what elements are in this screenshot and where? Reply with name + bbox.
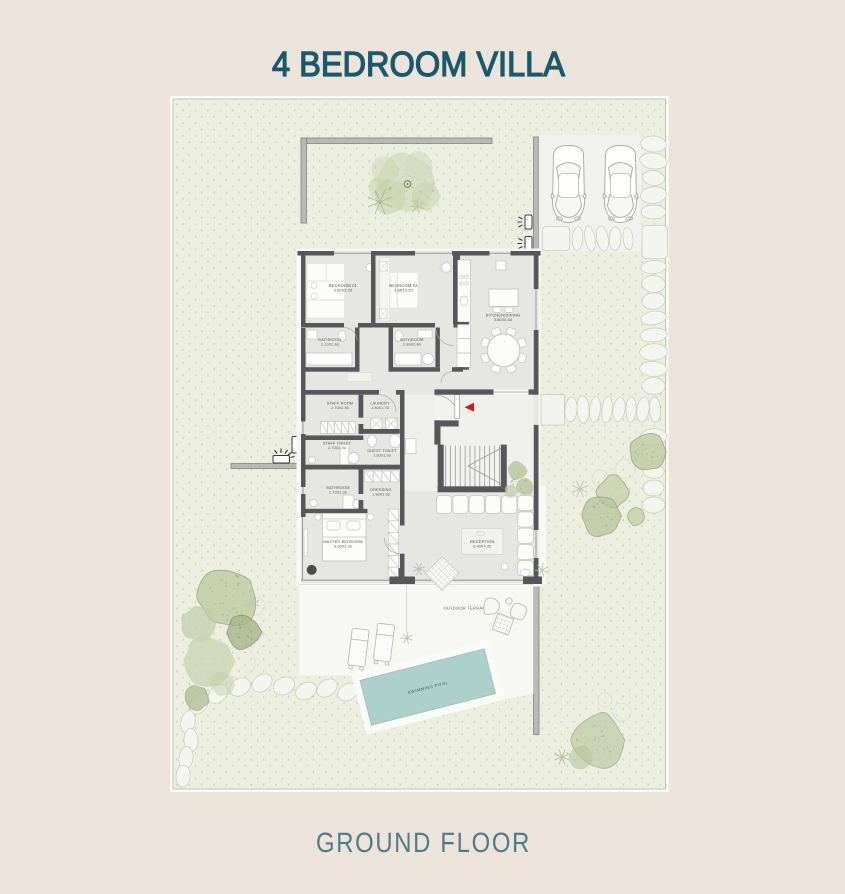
svg-text:1.80X1.70: 1.80X1.70 bbox=[371, 406, 389, 410]
svg-text:3.80X6.60: 3.80X6.60 bbox=[494, 318, 512, 322]
svg-text:2.70X1.30: 2.70X1.30 bbox=[328, 446, 346, 450]
svg-text:2.70X2.65: 2.70X2.65 bbox=[331, 406, 349, 410]
svg-text:1.90X2.00: 1.90X2.00 bbox=[372, 493, 390, 497]
svg-text:1.50X1.50: 1.50X1.50 bbox=[373, 454, 391, 458]
svg-text:OUTDOOR TERRACE: OUTDOOR TERRACE bbox=[443, 606, 488, 611]
svg-text:4 BEDROOM VILLA: 4 BEDROOM VILLA bbox=[272, 45, 566, 84]
svg-text:KITCHEN/DINING: KITCHEN/DINING bbox=[486, 313, 521, 318]
svg-text:LAUNDRY: LAUNDRY bbox=[370, 402, 390, 406]
svg-text:5.00X3.30: 5.00X3.30 bbox=[334, 545, 352, 549]
svg-text:RECEPTION: RECEPTION bbox=[470, 539, 495, 544]
svg-text:BATHROOM: BATHROOM bbox=[318, 338, 341, 342]
svg-text:GUEST TOILET: GUEST TOILET bbox=[367, 449, 397, 453]
svg-text:3.80X3.20: 3.80X3.20 bbox=[394, 289, 413, 293]
svg-text:MASTER BEDROOM: MASTER BEDROOM bbox=[323, 540, 362, 544]
svg-text:STAFF ROOM: STAFF ROOM bbox=[327, 402, 354, 406]
svg-text:6.40X4.20: 6.40X4.20 bbox=[473, 545, 491, 549]
svg-text:2.70X2.00: 2.70X2.00 bbox=[329, 491, 347, 495]
svg-text:BATHROOM: BATHROOM bbox=[326, 486, 349, 490]
svg-text:3.50X3.20: 3.50X3.20 bbox=[334, 289, 353, 293]
svg-text:BEDROOM 02: BEDROOM 02 bbox=[389, 283, 418, 288]
svg-text:BATHROOM: BATHROOM bbox=[400, 338, 423, 342]
svg-text:2.65X2.60: 2.65X2.60 bbox=[403, 343, 421, 347]
svg-text:DRESSING: DRESSING bbox=[370, 488, 391, 492]
svg-text:GROUND FLOOR: GROUND FLOOR bbox=[316, 827, 531, 858]
svg-text:BEDROOM 01: BEDROOM 01 bbox=[329, 283, 358, 288]
svg-text:STAFF TOILET: STAFF TOILET bbox=[323, 442, 352, 446]
svg-text:2.10X2.60: 2.10X2.60 bbox=[321, 343, 339, 347]
